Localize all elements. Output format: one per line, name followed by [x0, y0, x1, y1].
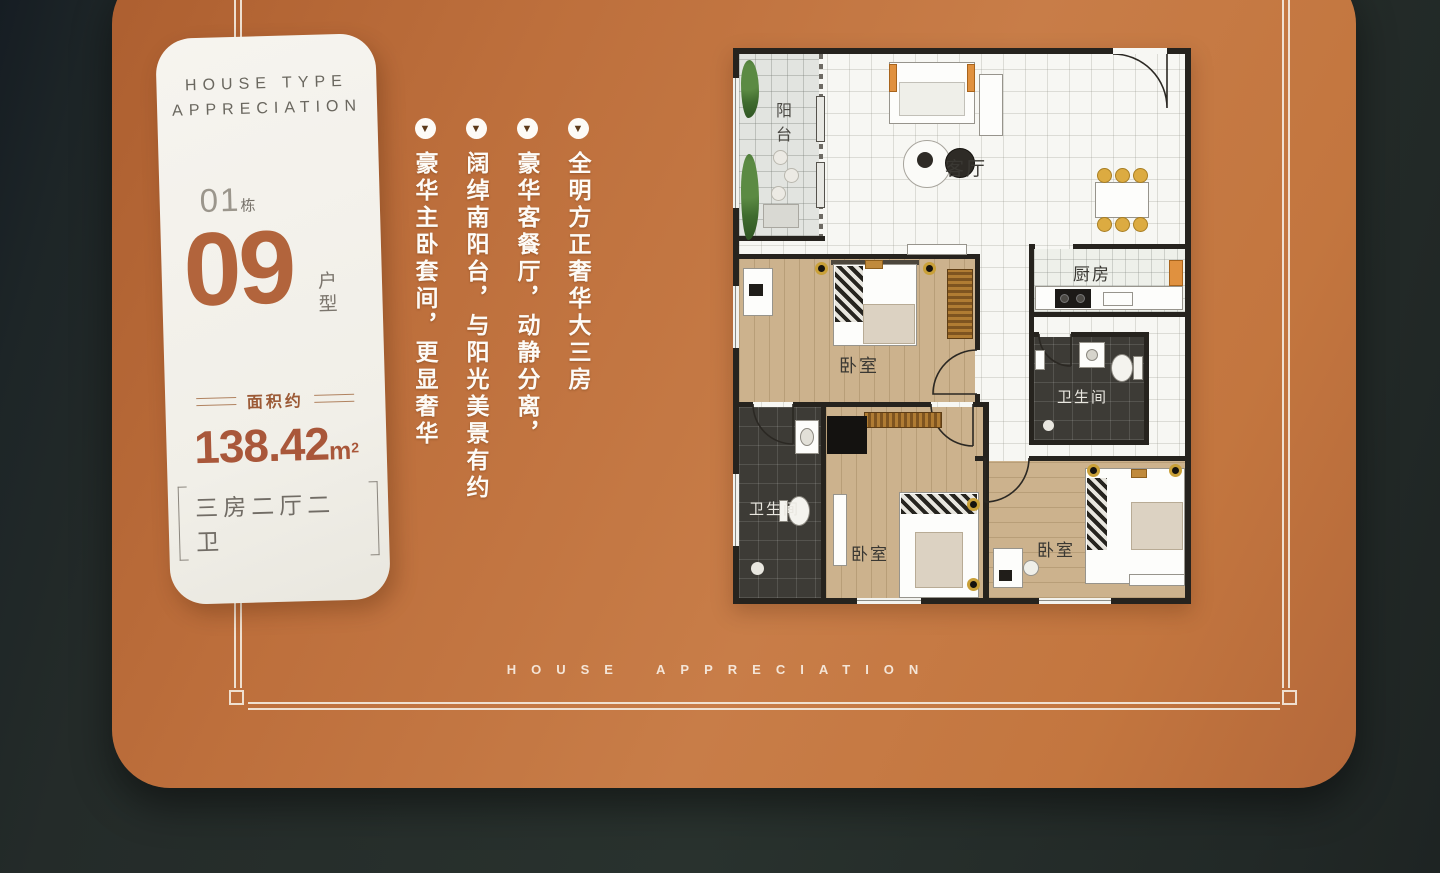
washing-machine-door — [1086, 349, 1098, 361]
stove-burner — [1076, 294, 1085, 303]
dining-chair — [1133, 168, 1148, 183]
tv-console — [907, 244, 967, 255]
feature-item: ▼阔绰南阳台，与阳光美景有约 — [459, 118, 493, 558]
bed-blanket — [915, 532, 963, 588]
bed-blanket — [863, 304, 915, 344]
divider-line-right — [314, 393, 354, 402]
bed-pillows — [1087, 478, 1107, 550]
nightstand-lamp — [815, 262, 828, 275]
area-label: 面积约 — [246, 387, 304, 413]
room-label-living: 客厅 — [945, 154, 987, 181]
frame-bottom-line-inner — [248, 708, 1280, 710]
triangle-down-icon: ▼ — [466, 118, 487, 139]
desk-computer — [999, 570, 1012, 581]
frame-bottom-line-outer — [248, 702, 1280, 704]
triangle-down-icon: ▼ — [568, 118, 589, 139]
dining-chair — [1097, 168, 1112, 183]
area-unit: m — [329, 436, 352, 465]
dining-chair — [1115, 168, 1130, 183]
wardrobe — [947, 269, 973, 339]
toilet-tank — [1133, 356, 1143, 380]
feature-text: 豪华客餐厅，动静分离， — [514, 151, 540, 448]
desk — [993, 548, 1023, 588]
layout-label: 三房二厅二卫 — [195, 481, 363, 560]
room-label-bathroom-left: 卫生间 — [749, 498, 800, 519]
desk-printer — [749, 284, 763, 296]
feature-item: ▼豪华主卧套间，更显奢华 — [408, 118, 442, 558]
bench — [833, 494, 847, 566]
panel-header: HOUSE TYPE APPRECIATION — [156, 69, 377, 125]
stepping-stone — [771, 186, 786, 201]
unit-suffix: 户型 — [312, 270, 340, 317]
stove-burner — [1060, 294, 1069, 303]
nightstand-lamp — [1169, 464, 1182, 477]
room-label-kitchen: 厨房 — [1073, 260, 1111, 285]
room-label-balcony: 阳台 — [769, 102, 793, 150]
toilet-bowl — [1111, 354, 1133, 382]
bed-pillows — [835, 266, 863, 322]
room-label-bathroom-right: 卫生间 — [1057, 386, 1108, 407]
bed-runner — [865, 260, 883, 269]
room-label-middle-bedroom: 卧室 — [851, 540, 889, 565]
floor-plan: 阳台 客厅 厨房 卫生间 卧室 卫生间 卧室 卧室 — [733, 48, 1191, 604]
unit-number: 09 — [182, 209, 295, 328]
layout-row: 三房二厅二卫 — [178, 481, 380, 561]
dining-chair — [1115, 217, 1130, 232]
frame-right-line-inner — [1288, 0, 1290, 688]
bedside-lamp — [967, 498, 980, 511]
fridge — [1169, 260, 1183, 286]
photo-background: HOUSE TYPE APPRECIATION 01栋 09 户型 面积约 13… — [0, 0, 1440, 873]
area-value: 138.42 — [193, 417, 329, 473]
coffee-table — [917, 152, 933, 168]
sofa-pillow-orange — [967, 64, 975, 92]
dining-chair — [1133, 217, 1148, 232]
bedside-stool — [967, 578, 980, 591]
room-label-master-bedroom: 卧室 — [839, 352, 879, 378]
stepping-stone — [784, 168, 799, 183]
window — [1039, 598, 1111, 604]
frame-left-corner-square — [229, 690, 244, 705]
wardrobe — [864, 412, 942, 428]
feature-item: ▼豪华客餐厅，动静分离， — [510, 118, 544, 558]
house-type-panel: HOUSE TYPE APPRECIATION 01栋 09 户型 面积约 13… — [155, 33, 391, 605]
bracket-left — [178, 486, 189, 560]
sofa-pillow-orange — [889, 64, 897, 92]
feature-text: 全明方正奢华大三房 — [565, 151, 591, 394]
bed-pillows — [901, 494, 977, 514]
floor-drain — [751, 562, 764, 575]
nightstand-lamp — [1087, 464, 1100, 477]
bracket-right — [369, 481, 380, 555]
area-superscript: 2 — [351, 439, 359, 455]
sofa-seat — [899, 82, 965, 116]
window — [857, 598, 921, 604]
feature-item: ▼全明方正奢华大三房 — [561, 118, 595, 558]
media-cabinet — [979, 74, 1003, 136]
footer-slogan: HOUSE APPRECIATION — [0, 662, 1440, 677]
balcony-table — [763, 204, 799, 228]
nightstand-lamp — [923, 262, 936, 275]
header-line-2: APPRECIATION — [157, 94, 378, 125]
unit-number-row: 09 户型 — [182, 211, 383, 344]
triangle-down-icon: ▼ — [517, 118, 538, 139]
dining-table — [1095, 182, 1149, 218]
bathroom-sink — [1035, 350, 1045, 370]
frame-right-corner-square — [1282, 690, 1297, 705]
feature-list: ▼全明方正奢华大三房 ▼豪华客餐厅，动静分离， ▼阔绰南阳台，与阳光美景有约 ▼… — [391, 118, 595, 558]
stepping-stone — [773, 150, 788, 165]
triangle-down-icon: ▼ — [415, 118, 436, 139]
bed-blanket — [1131, 502, 1183, 550]
floor-drain — [1043, 420, 1054, 431]
feature-text: 阔绰南阳台，与阳光美景有约 — [463, 151, 489, 502]
rug — [1129, 574, 1185, 586]
divider-line-left — [197, 397, 237, 406]
area-row: 138.42m2 — [166, 414, 387, 474]
sink-basin — [800, 428, 814, 446]
bed-runner — [1131, 469, 1147, 478]
desk-chair — [1023, 560, 1039, 576]
kitchen-sink — [1103, 292, 1133, 306]
room-label-right-bedroom: 卧室 — [1037, 536, 1075, 561]
dining-chair — [1097, 217, 1112, 232]
frame-right-line-outer — [1282, 0, 1284, 688]
feature-text: 豪华主卧套间，更显奢华 — [412, 151, 438, 448]
area-divider: 面积约 — [179, 385, 372, 414]
black-cabinet — [827, 416, 867, 454]
